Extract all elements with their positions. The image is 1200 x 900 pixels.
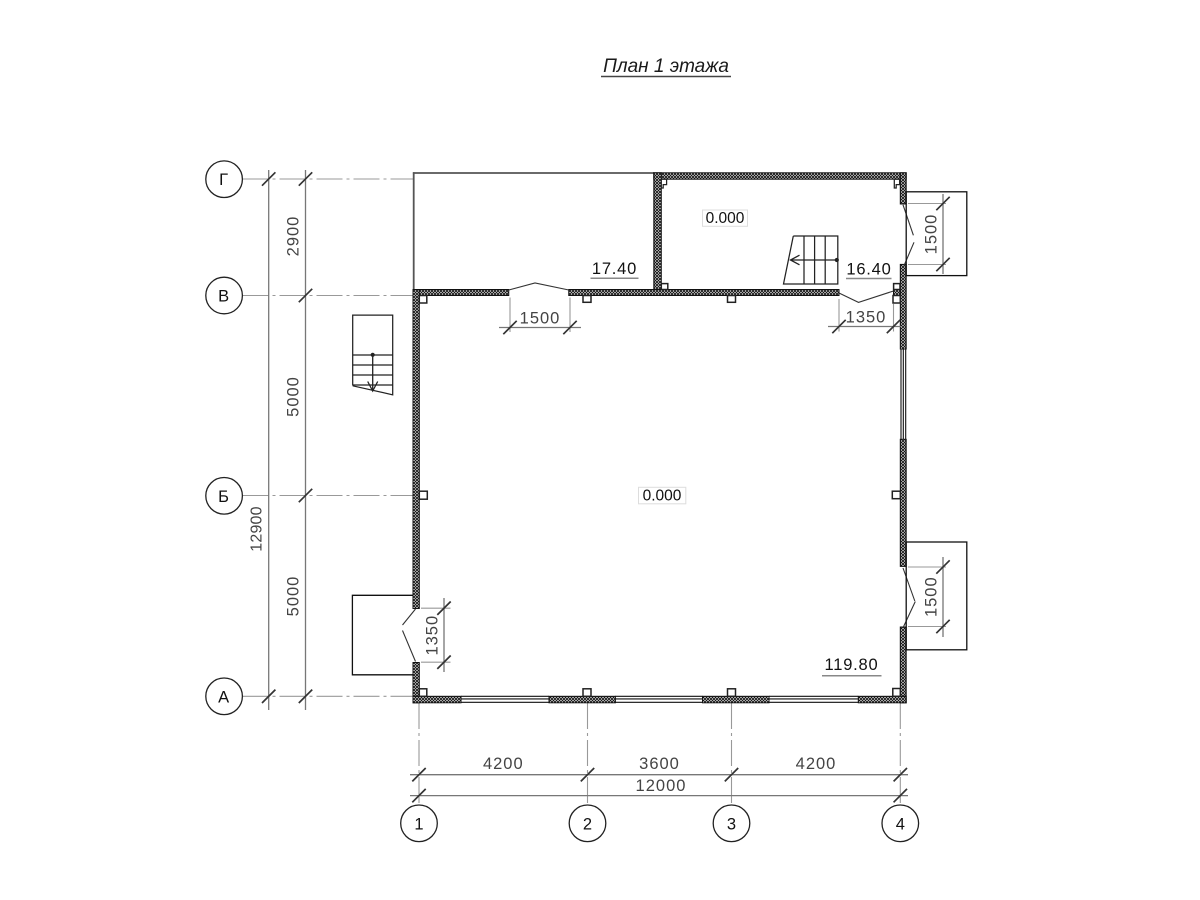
svg-text:0.000: 0.000 [706,210,745,227]
svg-text:0.000: 0.000 [643,487,682,504]
svg-text:4: 4 [896,815,905,833]
svg-text:119.80: 119.80 [824,656,878,674]
svg-text:1350: 1350 [846,309,887,327]
svg-text:План 1 этажа: План 1 этажа [603,56,729,77]
svg-text:1350: 1350 [424,615,442,656]
svg-text:1500: 1500 [923,214,941,255]
svg-text:3: 3 [727,815,736,833]
svg-text:1: 1 [414,815,423,833]
svg-text:12000: 12000 [636,777,687,795]
svg-text:1500: 1500 [923,576,941,617]
svg-text:5000: 5000 [284,376,302,417]
svg-text:16.40: 16.40 [846,260,891,278]
svg-text:4200: 4200 [796,755,837,773]
svg-text:1500: 1500 [520,310,561,328]
svg-text:А: А [218,688,229,706]
svg-text:2: 2 [583,815,592,833]
svg-text:5000: 5000 [284,576,302,617]
svg-text:12900: 12900 [249,506,266,552]
svg-text:2900: 2900 [284,216,302,257]
svg-text:Б: Б [218,488,229,506]
svg-text:17.40: 17.40 [592,260,637,278]
svg-text:4200: 4200 [483,755,524,773]
svg-text:Г: Г [219,171,228,189]
svg-text:В: В [218,288,229,306]
svg-text:3600: 3600 [639,755,680,773]
